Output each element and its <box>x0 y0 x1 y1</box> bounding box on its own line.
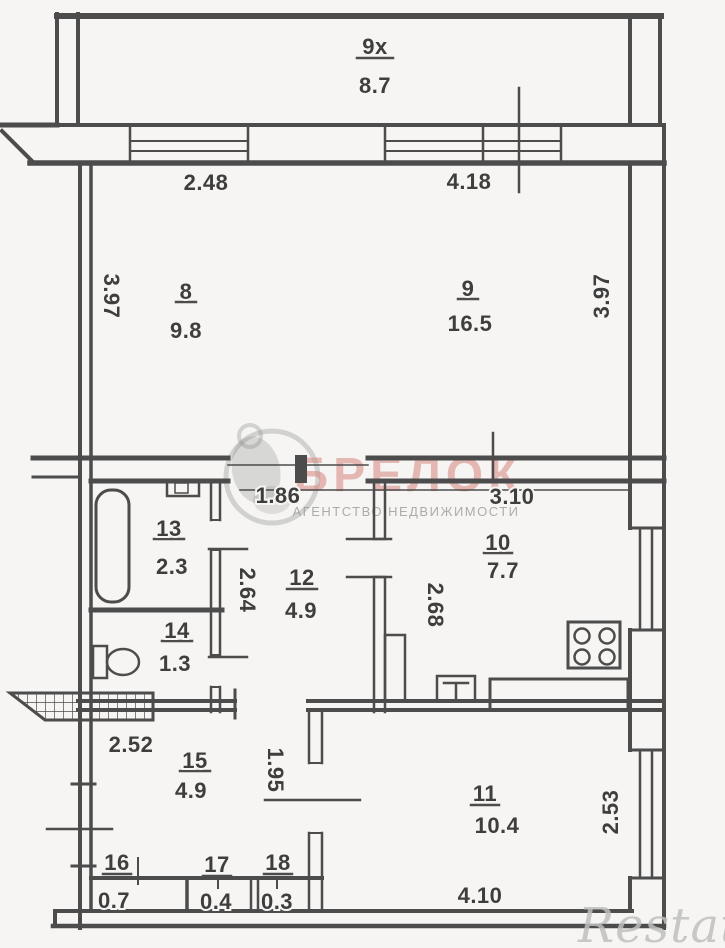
room-16-area: 0.7 <box>98 888 130 913</box>
room-14-number: 14 <box>164 618 190 643</box>
room-11-number: 11 <box>473 781 497 806</box>
room-17-area: 0.4 <box>200 889 232 914</box>
room-10-number: 10 <box>485 530 510 555</box>
dim-room9-width: 4.18 <box>447 169 492 194</box>
room-14-area: 1.3 <box>159 651 191 676</box>
balcony-number: 9x <box>362 34 388 59</box>
agency-tagline-watermark: АГЕНТСТВО НЕДВИЖИМОСТИ <box>293 504 520 519</box>
room-12-number: 12 <box>289 565 314 590</box>
dim-kitchen-width: 3.10 <box>490 484 535 509</box>
floor-plan-svg: БРЕЛОК АГЕНТСТВО НЕДВИЖИМОСТИ <box>0 0 725 948</box>
dim-room8-width: 2.48 <box>184 170 229 195</box>
room-16-number: 16 <box>104 850 129 875</box>
dim-hall-depth: 2.64 <box>235 568 260 613</box>
wall <box>295 455 307 483</box>
dim-room11-width: 4.10 <box>458 883 503 908</box>
room-8-number: 8 <box>180 279 193 304</box>
dim-left-height: 3.97 <box>99 274 124 319</box>
room-17-number: 17 <box>204 852 229 877</box>
room-18-number: 18 <box>265 850 290 875</box>
balcony-area: 8.7 <box>359 73 391 98</box>
dim-entry-width: 2.52 <box>109 732 154 757</box>
room-11-area: 10.4 <box>475 813 520 838</box>
floor-plan-page: БРЕЛОК АГЕНТСТВО НЕДВИЖИМОСТИ <box>0 0 725 948</box>
room-15-area: 4.9 <box>175 778 207 803</box>
room-13-number: 13 <box>156 516 181 541</box>
portal-watermark: Restate <box>577 898 725 948</box>
room-13-area: 2.3 <box>156 554 188 579</box>
dim-room15-depth: 1.95 <box>263 748 288 793</box>
room-10-area: 7.7 <box>487 558 519 583</box>
room-9-number: 9 <box>462 276 475 301</box>
dim-hall-width: 1.86 <box>256 483 301 508</box>
dim-right-height: 3.97 <box>589 274 614 319</box>
room-18-area: 0.3 <box>261 889 293 914</box>
room-8-area: 9.8 <box>170 318 202 343</box>
room-15-number: 15 <box>182 748 207 773</box>
dim-room11-depth: 2.53 <box>598 790 623 835</box>
dim-kitchen-depth: 2.68 <box>423 583 448 628</box>
room-9-area: 16.5 <box>448 311 493 336</box>
room-12-area: 4.9 <box>285 598 317 623</box>
